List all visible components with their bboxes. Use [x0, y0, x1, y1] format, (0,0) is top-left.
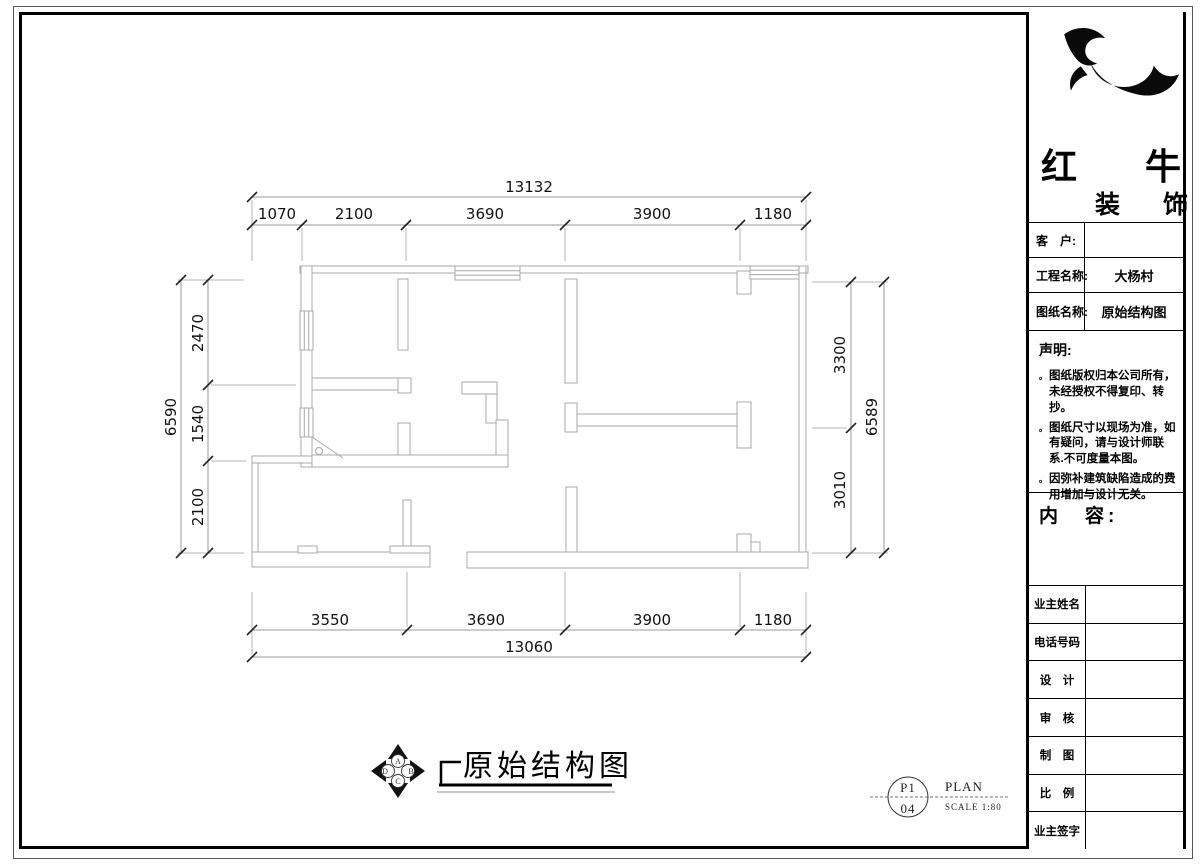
sign-label: 设 计: [1029, 661, 1086, 698]
window-left-2: [300, 408, 313, 437]
field-label: 客 户:: [1029, 223, 1085, 257]
window-top-2: [750, 266, 799, 279]
dim-left-total: 6590: [162, 398, 180, 436]
title-block-logo-area: 红 牛 装 饰: [1029, 12, 1183, 222]
dim-bottom-seg: 1180: [754, 611, 792, 629]
wall-room1-right: [398, 279, 408, 350]
wall-bottom-stub-step: [751, 542, 760, 552]
wall-balcony-left: [252, 456, 258, 562]
dim-top-seg: 1180: [754, 205, 792, 223]
sign-value: [1086, 586, 1183, 623]
svg-text:B: B: [408, 767, 413, 776]
dim-right-seg: 3010: [831, 471, 849, 509]
sign-value: [1086, 624, 1183, 661]
sign-label: 电话号码: [1029, 624, 1086, 661]
dim-right-seg: 3300: [831, 336, 849, 374]
wall-bottom-step: [298, 546, 317, 553]
field-value: 大杨村: [1085, 266, 1183, 285]
wall-center-jamb: [565, 403, 577, 432]
dim-left-seg: 1540: [189, 405, 207, 443]
sign-row-draft: 制 图: [1029, 736, 1183, 774]
wall-bottom-left: [252, 552, 430, 567]
dim-bottom-seg: 3690: [467, 611, 505, 629]
brand-name: 红 牛: [1041, 138, 1197, 190]
bullet-marker: 。: [1039, 423, 1047, 469]
wall-center-upper: [565, 279, 577, 383]
dimension-labels: 13132 1070 2100 3690 3900 1180 6590 2470…: [162, 178, 881, 656]
dim-top-seg: 1070: [258, 205, 296, 223]
sheet-number-mark: P1 04 PLAN SCALE 1:80: [870, 777, 1008, 817]
wall-center-lower: [566, 487, 577, 552]
svg-text:D: D: [382, 767, 388, 776]
compass-icon: A B C D: [371, 744, 425, 798]
field-label: 工程名称:: [1029, 258, 1085, 292]
bullet-marker: 。: [1039, 474, 1047, 504]
wall-center-horizontal: [577, 414, 737, 426]
statement-section: 声明: 。 图纸版权归本公司所有，未经授权不得复印、转抄。 。 图纸尺寸以现场为…: [1029, 330, 1183, 492]
drawing-title: 原始结构图: [463, 750, 633, 783]
sign-row-phone: 电话号码: [1029, 623, 1183, 661]
field-row-project: 工程名称: 大杨村: [1029, 257, 1183, 292]
sign-row-design: 设 计: [1029, 660, 1183, 698]
sign-row-owner-name: 业主姓名: [1029, 585, 1183, 623]
field-label: 图纸名称:: [1029, 293, 1085, 330]
wall-top-stub: [737, 271, 751, 294]
content-heading: 内 容:: [1039, 501, 1183, 528]
field-row-customer: 客 户:: [1029, 222, 1183, 257]
wall-jamb: [398, 378, 411, 393]
wall-room1-bottom: [312, 378, 398, 390]
sign-value: [1086, 661, 1183, 698]
dim-bottom-total: 13060: [505, 638, 553, 656]
walls: [252, 266, 808, 568]
windows: [300, 266, 799, 437]
floor-plan-drawing: 13132 1070 2100 3690 3900 1180 6590 2470…: [18, 12, 1026, 849]
wall-closet-side: [486, 394, 497, 423]
drawing-title-group: 原始结构图: [437, 750, 633, 792]
sign-value: [1086, 737, 1183, 774]
sheet-code-top: P1: [900, 780, 916, 795]
dim-top-seg: 3900: [633, 205, 671, 223]
wall-tee-column: [737, 402, 751, 448]
wall-corridor-riser: [496, 420, 508, 455]
sign-label: 业主签字: [1029, 812, 1086, 849]
window-top-1: [455, 266, 520, 280]
sheet-type: PLAN: [945, 779, 983, 794]
dim-top-seg: 2100: [335, 205, 373, 223]
statement-heading: 声明:: [1039, 340, 1177, 360]
blueprint-sheet: { "title_block": { "brand": { "name_top"…: [0, 0, 1200, 865]
signature-rows: 业主姓名 电话号码 设 计 审 核 制 图 比 例 业主签字: [1029, 585, 1183, 849]
field-row-drawing-name: 图纸名称: 原始结构图: [1029, 292, 1183, 330]
wall-room2-right: [398, 423, 410, 455]
sign-label: 制 图: [1029, 737, 1086, 774]
bull-logo-icon: [1035, 20, 1181, 138]
wall-closet-top: [462, 382, 497, 394]
sign-row-owner-signature: 业主签字: [1029, 811, 1183, 849]
sign-value: [1086, 775, 1183, 812]
dimension-ticks: [176, 192, 889, 662]
dim-top-total: 13132: [505, 178, 553, 196]
content-section: 内 容:: [1029, 492, 1183, 585]
field-value: 原始结构图: [1085, 302, 1183, 321]
wall-bottom-stub: [737, 534, 751, 552]
sign-row-review: 审 核: [1029, 698, 1183, 736]
dim-left-seg: 2100: [189, 488, 207, 526]
statement-item: 。 因弥补建筑缺陷造成的费用增加与设计无关。: [1039, 472, 1177, 504]
statement-text: 图纸尺寸以现场为准，如有疑问，请与设计师联系.不可度量本图。: [1049, 421, 1177, 469]
statement-text: 图纸版权归本公司所有，未经授权不得复印、转抄。: [1049, 369, 1177, 417]
wall-balcony-top: [252, 456, 312, 463]
sign-label: 业主姓名: [1029, 586, 1086, 623]
sheet-code-bottom: 04: [901, 801, 916, 816]
window-left-1: [300, 311, 313, 350]
dim-top-seg: 3690: [466, 205, 504, 223]
sign-value: [1086, 699, 1183, 736]
statement-item: 。 图纸版权归本公司所有，未经授权不得复印、转抄。: [1039, 369, 1177, 417]
statement-item: 。 图纸尺寸以现场为准，如有疑问，请与设计师联系.不可度量本图。: [1039, 421, 1177, 469]
wall-bottom-right: [467, 552, 808, 568]
wall-lower-left-stub: [403, 500, 411, 547]
bullet-marker: 。: [1039, 371, 1047, 417]
sheet-scale: SCALE 1:80: [945, 802, 1002, 812]
dim-left-seg: 2470: [189, 314, 207, 352]
dim-right-total: 6589: [863, 398, 881, 436]
sign-label: 比 例: [1029, 775, 1086, 812]
sign-value: [1086, 812, 1183, 849]
title-block: 红 牛 装 饰 客 户: 工程名称: 大杨村 图纸名称: 原始结构图 声明: 。…: [1026, 12, 1183, 849]
svg-text:A: A: [395, 757, 401, 766]
svg-text:C: C: [395, 777, 400, 786]
sign-label: 审 核: [1029, 699, 1086, 736]
brand-suffix: 装 饰: [1095, 185, 1197, 221]
wall-top: [300, 266, 808, 273]
dim-bottom-seg: 3900: [633, 611, 671, 629]
statement-text: 因弥补建筑缺陷造成的费用增加与设计无关。: [1049, 472, 1177, 504]
sign-row-scale: 比 例: [1029, 774, 1183, 812]
wall-lower-left-foot: [390, 546, 430, 553]
dim-bottom-seg: 3550: [311, 611, 349, 629]
